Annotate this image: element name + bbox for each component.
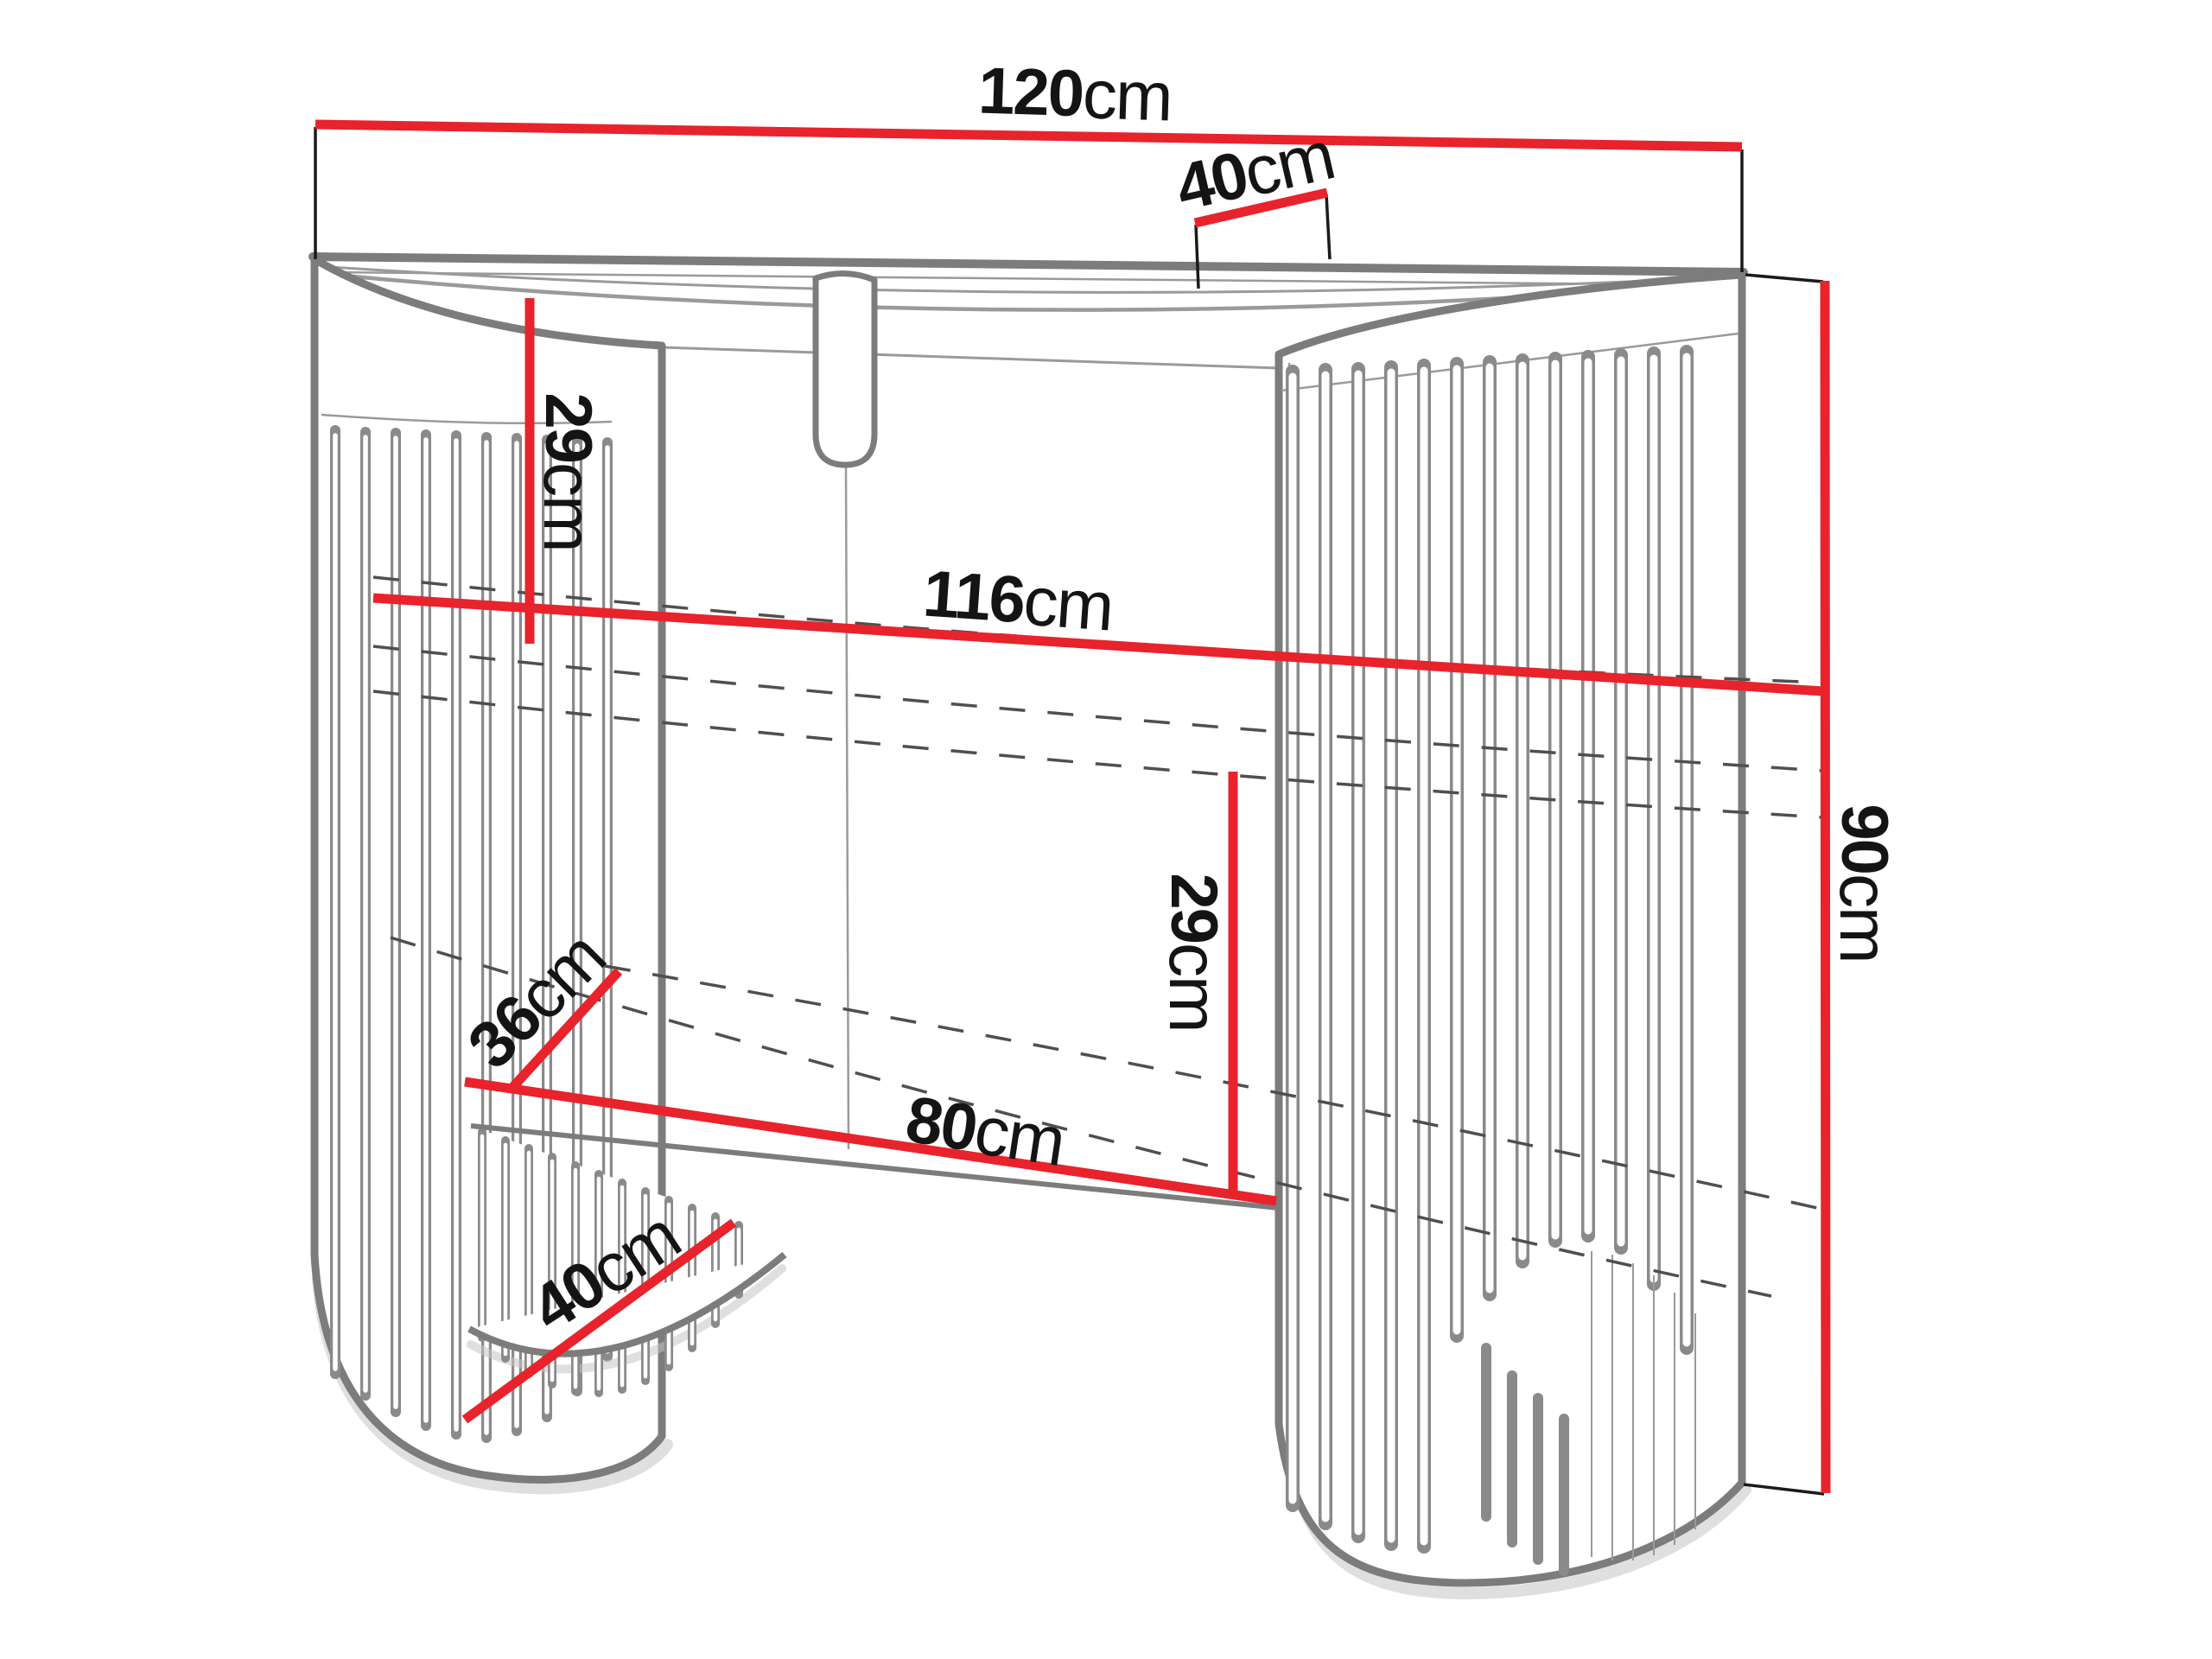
dimension-label-29cm-upper: 29cm — [531, 392, 607, 550]
dimension-overall-width: 120cm — [315, 52, 1742, 272]
furniture-dimension-diagram: 120cm 40cm 29cm 116cm 36cm 80cm 29cm 40c… — [0, 0, 2212, 1659]
dimension-value: 116 — [921, 556, 1027, 637]
extension-line — [1745, 275, 1823, 282]
tabletop-back-rim — [313, 257, 1744, 272]
dimension-unit: cm — [531, 462, 607, 551]
dimension-overall-height: 90cm — [1744, 275, 1904, 1494]
dimension-value: 80 — [901, 1082, 981, 1165]
dimension-value: 29 — [1158, 873, 1231, 943]
dimension-unit: cm — [1827, 874, 1904, 963]
diagram-page: 120cm 40cm 29cm 116cm 36cm 80cm 29cm 40c… — [0, 0, 2212, 1659]
front-doors — [662, 273, 1279, 1208]
door-handle — [816, 273, 874, 465]
extension-line — [1326, 194, 1330, 259]
dimension-value: 120 — [977, 54, 1084, 130]
dimension-unit: cm — [1021, 562, 1116, 645]
right-slat-panel — [1279, 275, 1745, 1593]
dimension-label-90cm: 90cm — [1827, 804, 1904, 962]
door-panel — [662, 344, 1279, 1208]
extension-line — [1744, 1484, 1824, 1494]
dimension-unit: cm — [1156, 943, 1233, 1032]
dimension-unit: cm — [1082, 55, 1173, 135]
dimension-label-120cm: 120cm — [977, 52, 1173, 135]
dimension-label-40cm-top: 40cm — [1169, 116, 1341, 226]
dimension-value: 29 — [532, 392, 606, 462]
dimension-unit: cm — [969, 1090, 1069, 1179]
dimension-value: 90 — [1828, 804, 1902, 874]
dimension-line-90cm — [1825, 281, 1826, 1493]
extension-line — [1196, 225, 1198, 289]
dimension-label-29cm-lower: 29cm — [1156, 873, 1233, 1031]
dimension-label-116cm: 116cm — [921, 555, 1116, 645]
